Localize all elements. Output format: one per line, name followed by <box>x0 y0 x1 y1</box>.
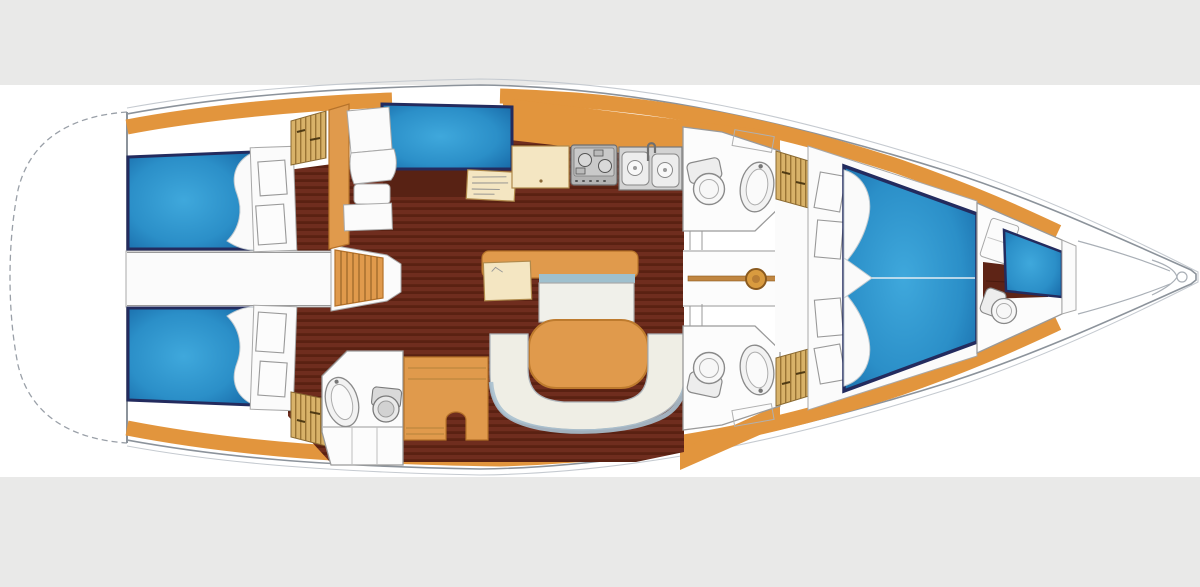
locker-door <box>256 204 287 245</box>
locker-square <box>814 172 846 212</box>
toilet-bowl <box>694 174 725 205</box>
hanging-locker <box>291 392 326 446</box>
stove-icon <box>571 145 617 185</box>
drain <box>633 166 637 170</box>
mast-core <box>752 275 760 283</box>
nav-seat <box>344 107 397 231</box>
locker-door <box>258 160 287 196</box>
burner <box>579 154 592 167</box>
hanging-locker <box>291 111 326 165</box>
stern-swim-platform <box>10 112 127 443</box>
seat-cushion <box>350 149 396 184</box>
double-sink-icon <box>619 143 682 190</box>
starboard-aft-head <box>320 351 403 465</box>
table-leaf <box>539 283 634 322</box>
cabinet-handle <box>539 179 542 182</box>
seat-base <box>354 184 390 204</box>
locker-square <box>258 361 287 397</box>
galley <box>512 143 682 190</box>
toilet-bowl-inner <box>378 401 394 417</box>
locker-square <box>814 220 843 259</box>
bottom-gray-band <box>0 477 1200 587</box>
yacht-layout-page <box>0 0 1200 587</box>
burner <box>599 160 612 173</box>
toilet-bowl <box>694 353 725 384</box>
burner-grate <box>594 150 603 156</box>
yacht-layout-diagram <box>0 0 1200 587</box>
drain <box>663 168 667 172</box>
locker-door <box>256 312 287 353</box>
chart-table <box>466 170 515 201</box>
seat-back <box>347 107 392 153</box>
nav-berth-panel <box>382 104 512 169</box>
table-trim-stripe <box>539 274 635 283</box>
locker-square <box>256 204 287 245</box>
bench-top <box>483 261 531 301</box>
locker-square <box>814 344 846 384</box>
locker-square <box>258 160 287 196</box>
oval-table <box>529 320 648 388</box>
nav-shelf <box>344 203 393 231</box>
chart-table-top <box>466 170 515 201</box>
bench-seat <box>483 261 531 301</box>
walkway-deck <box>126 251 340 307</box>
burner-grate <box>576 168 585 174</box>
aft-walkway <box>126 251 340 307</box>
forward-bulkhead <box>1062 240 1076 314</box>
locker-square <box>814 298 843 337</box>
bow-fitting-icon <box>1177 272 1187 282</box>
top-gray-band <box>0 0 1200 85</box>
nav-cabinet-front <box>383 169 467 197</box>
dresser-steps <box>404 357 488 440</box>
toilet-bowl <box>992 299 1017 324</box>
locker-square <box>256 312 287 353</box>
locker-door <box>258 361 287 397</box>
